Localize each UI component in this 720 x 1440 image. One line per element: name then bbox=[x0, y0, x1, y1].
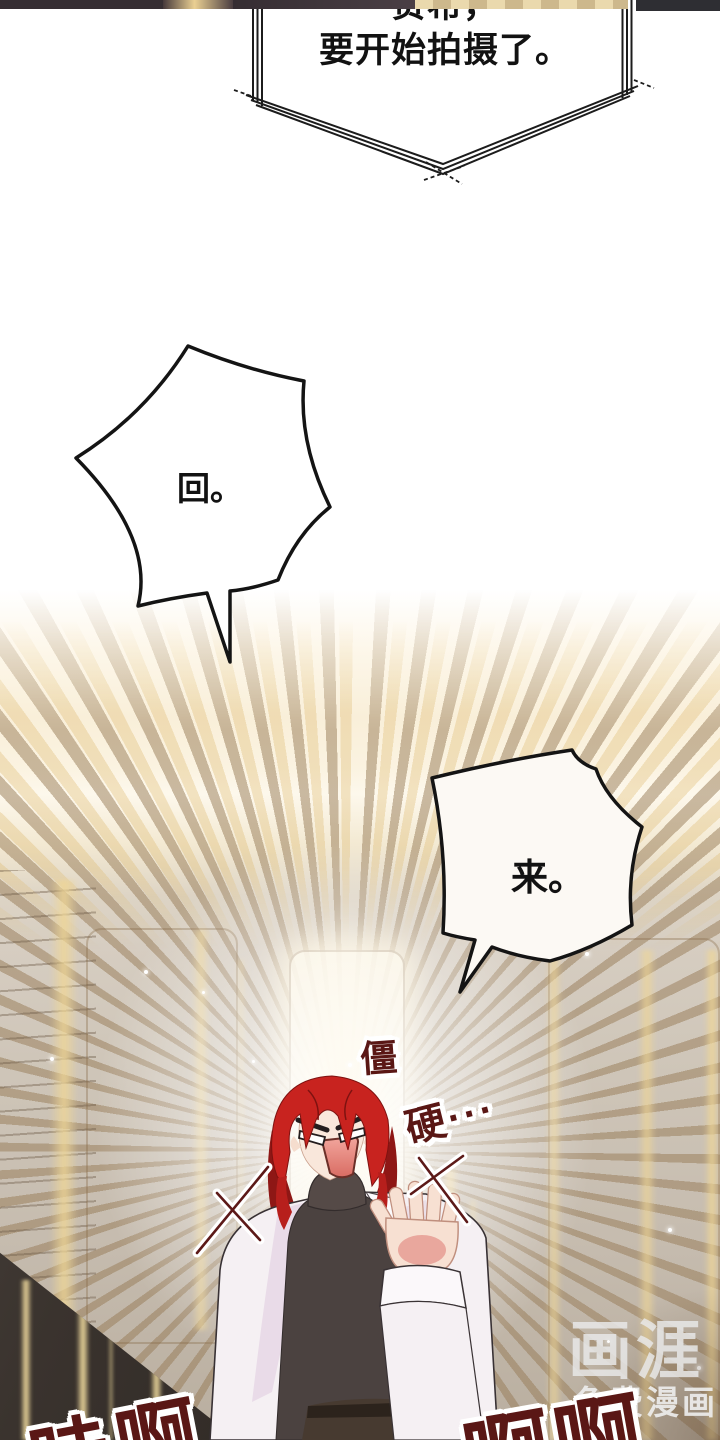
panel-edge-dark bbox=[636, 0, 720, 11]
panel-edge-glow bbox=[163, 0, 233, 9]
panel-edge-lit bbox=[415, 0, 628, 9]
gold-pillar bbox=[50, 880, 78, 1330]
sfx-stiff-top: 僵 bbox=[358, 1027, 399, 1083]
speech-text-middle: 回。 bbox=[120, 462, 300, 510]
panel-edge-dark bbox=[233, 0, 415, 9]
speech-text-lower: 来。 bbox=[468, 847, 628, 901]
panel-edge-dark bbox=[0, 0, 163, 9]
sparkle bbox=[202, 991, 205, 994]
comic-page: 贤希， 要开始拍摄了。 回。 来。 bbox=[0, 0, 720, 1440]
speech-text-top: 贤希， 要开始拍摄了。 bbox=[255, 0, 635, 73]
stiffness-marks-right bbox=[405, 1148, 485, 1233]
stiffness-marks-left bbox=[185, 1155, 285, 1265]
sparkle bbox=[668, 1228, 672, 1232]
sparkle bbox=[50, 1057, 54, 1061]
speech-text-top-line2: 要开始拍摄了。 bbox=[255, 28, 635, 73]
sparkle bbox=[144, 970, 148, 974]
